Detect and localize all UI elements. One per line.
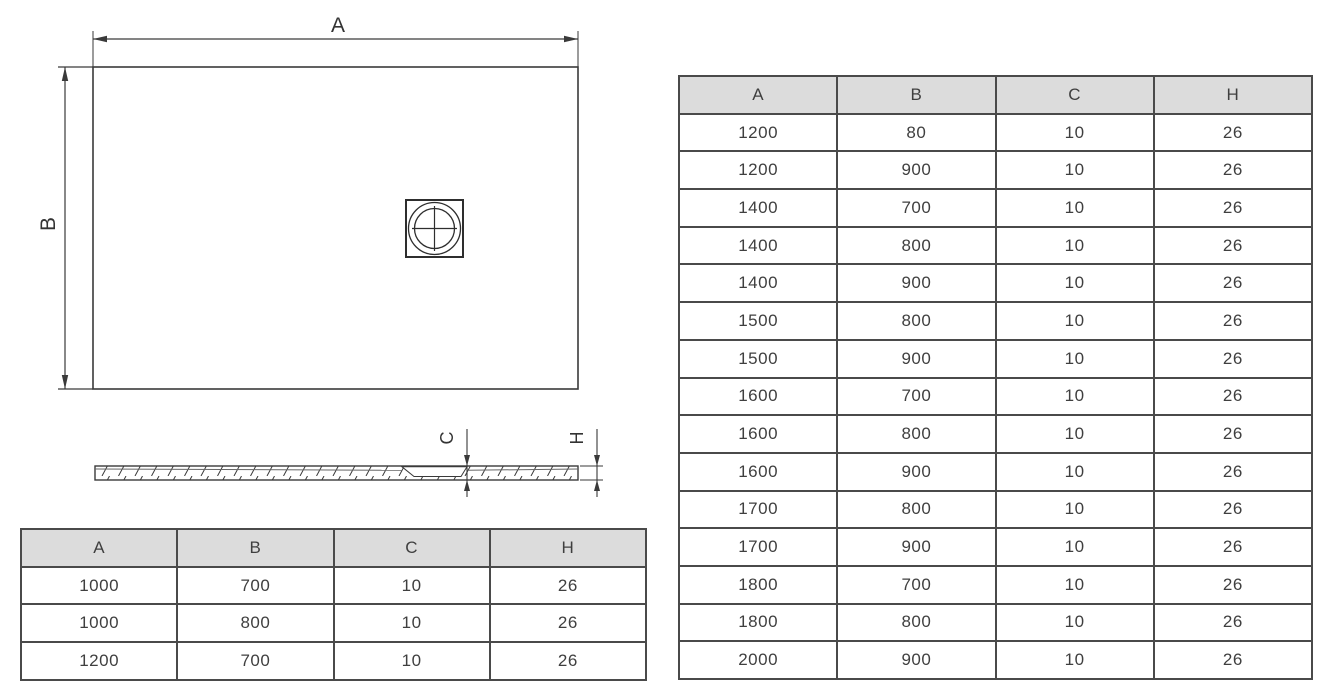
table-cell: 10 (996, 566, 1154, 604)
table-cell: 1400 (679, 189, 837, 227)
table-cell: 26 (1154, 491, 1312, 529)
table-cell: 1700 (679, 528, 837, 566)
dim-h: H (567, 429, 603, 497)
h-arrow-down (594, 455, 600, 466)
table-cell: 26 (1154, 641, 1312, 679)
table-row: 17008001026 (679, 491, 1312, 529)
dim-h-label: H (567, 432, 587, 445)
col-header-b: B (837, 76, 995, 114)
table-cell: 10 (996, 604, 1154, 642)
col-header-c: C (996, 76, 1154, 114)
table-cell: 26 (1154, 415, 1312, 453)
table-cell: 900 (837, 264, 995, 302)
table-header-row: A B C H (679, 76, 1312, 114)
tray-outline (93, 67, 578, 389)
dim-c-label: C (437, 432, 457, 445)
table-cell: 700 (837, 378, 995, 416)
table-cell: 1400 (679, 227, 837, 265)
dim-a-label: A (331, 14, 345, 37)
table-cell: 10 (334, 567, 490, 605)
b-arrow-top (62, 67, 68, 81)
table-cell: 1000 (21, 567, 177, 605)
table-row: 16008001026 (679, 415, 1312, 453)
dim-a: A (93, 14, 578, 67)
table-cell: 10 (996, 491, 1154, 529)
table-cell: 10 (996, 264, 1154, 302)
table-cell: 800 (837, 415, 995, 453)
table-cell: 10 (996, 340, 1154, 378)
table-cell: 10 (334, 604, 490, 642)
table-cell: 800 (837, 491, 995, 529)
table-row: 1200801026 (679, 114, 1312, 152)
table-cell: 26 (1154, 453, 1312, 491)
table-row: 10007001026 (21, 567, 646, 605)
table-cell: 26 (1154, 151, 1312, 189)
c-arrow-up (464, 480, 470, 491)
top-view: A B (37, 14, 578, 389)
table-cell: 26 (1154, 378, 1312, 416)
table-cell: 900 (837, 340, 995, 378)
table-cell: 2000 (679, 641, 837, 679)
c-arrow-down (464, 455, 470, 466)
table-row: 17009001026 (679, 528, 1312, 566)
drain-recess (402, 467, 467, 477)
table-cell: 26 (490, 567, 646, 605)
table-cell: 26 (1154, 528, 1312, 566)
right-size-table: A B C H 12008010261200900102614007001026… (678, 75, 1313, 680)
table-cell: 10 (996, 528, 1154, 566)
table-row: 10008001026 (21, 604, 646, 642)
table-cell: 26 (1154, 264, 1312, 302)
table-row: 18007001026 (679, 566, 1312, 604)
table-row: 12009001026 (679, 151, 1312, 189)
table-cell: 1600 (679, 415, 837, 453)
col-header-b: B (177, 529, 333, 567)
table-cell: 26 (1154, 566, 1312, 604)
table-cell: 1200 (21, 642, 177, 680)
table-cell: 10 (996, 151, 1154, 189)
table-row: 15008001026 (679, 302, 1312, 340)
table-cell: 800 (837, 604, 995, 642)
table-cell: 10 (996, 415, 1154, 453)
table-cell: 700 (837, 189, 995, 227)
table-cell: 900 (837, 641, 995, 679)
a-arrow-left (93, 36, 107, 42)
col-header-h: H (1154, 76, 1312, 114)
table-row: 16007001026 (679, 378, 1312, 416)
table-cell: 700 (177, 567, 333, 605)
table-cell: 26 (1154, 302, 1312, 340)
table-cell: 10 (996, 227, 1154, 265)
table-cell: 800 (837, 227, 995, 265)
section-view: C H (95, 429, 603, 497)
table-cell: 900 (837, 453, 995, 491)
table-cell: 1200 (679, 114, 837, 152)
col-header-h: H (490, 529, 646, 567)
col-header-a: A (21, 529, 177, 567)
table-cell: 26 (1154, 189, 1312, 227)
drain-symbol (406, 200, 463, 257)
b-arrow-bottom (62, 375, 68, 389)
table-header-row: A B C H (21, 529, 646, 567)
table-cell: 80 (837, 114, 995, 152)
table-row: 14007001026 (679, 189, 1312, 227)
left-size-table: A B C H 10007001026100080010261200700102… (20, 528, 647, 681)
table-cell: 10 (996, 302, 1154, 340)
table-cell: 900 (837, 151, 995, 189)
table-cell: 26 (1154, 114, 1312, 152)
table-cell: 800 (837, 302, 995, 340)
table-row: 16009001026 (679, 453, 1312, 491)
table-cell: 26 (490, 604, 646, 642)
dim-b: B (37, 67, 68, 389)
table-cell: 10 (996, 189, 1154, 227)
table-cell: 26 (1154, 340, 1312, 378)
col-header-a: A (679, 76, 837, 114)
technical-drawing-page: A B (0, 0, 1323, 694)
table-cell: 1600 (679, 378, 837, 416)
table-cell: 26 (1154, 227, 1312, 265)
table-row: 15009001026 (679, 340, 1312, 378)
table-cell: 1500 (679, 302, 837, 340)
table-row: 18008001026 (679, 604, 1312, 642)
table-cell: 1200 (679, 151, 837, 189)
table-row: 14008001026 (679, 227, 1312, 265)
table-row: 14009001026 (679, 264, 1312, 302)
table-cell: 800 (177, 604, 333, 642)
section-profile (95, 466, 578, 480)
dim-b-label: B (37, 217, 60, 231)
table-cell: 1600 (679, 453, 837, 491)
table-row: 12007001026 (21, 642, 646, 680)
table-cell: 700 (177, 642, 333, 680)
table-cell: 900 (837, 528, 995, 566)
table-cell: 1700 (679, 491, 837, 529)
a-arrow-right (564, 36, 578, 42)
table-cell: 1800 (679, 604, 837, 642)
table-cell: 700 (837, 566, 995, 604)
dim-c: C (437, 429, 470, 497)
table-cell: 1400 (679, 264, 837, 302)
table-cell: 26 (1154, 604, 1312, 642)
h-arrow-up (594, 480, 600, 491)
table-cell: 1800 (679, 566, 837, 604)
table-cell: 1500 (679, 340, 837, 378)
shower-tray-drawing: A B (0, 0, 660, 520)
table-cell: 10 (334, 642, 490, 680)
table-cell: 10 (996, 641, 1154, 679)
table-cell: 26 (490, 642, 646, 680)
col-header-c: C (334, 529, 490, 567)
table-cell: 1000 (21, 604, 177, 642)
table-cell: 10 (996, 114, 1154, 152)
table-cell: 10 (996, 453, 1154, 491)
table-cell: 10 (996, 378, 1154, 416)
table-row: 20009001026 (679, 641, 1312, 679)
